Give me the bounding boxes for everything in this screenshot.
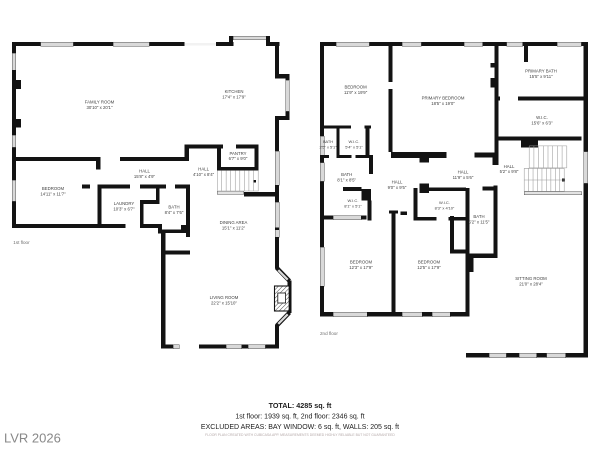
svg-text:PRIMARY BEDROOM: PRIMARY BEDROOM xyxy=(422,95,465,100)
svg-text:1st floor: 1st floor xyxy=(13,240,30,245)
svg-text:2'5" x 5'1": 2'5" x 5'1" xyxy=(319,144,337,149)
svg-text:HALL: HALL xyxy=(458,170,469,175)
svg-text:30'10" x 20'1": 30'10" x 20'1" xyxy=(87,105,113,110)
svg-text:LAUNDRY: LAUNDRY xyxy=(114,201,135,206)
svg-text:2nd floor: 2nd floor xyxy=(320,331,338,336)
svg-text:14'11" x 11'7": 14'11" x 11'7" xyxy=(40,192,66,197)
svg-text:4'10" x 8'4": 4'10" x 8'4" xyxy=(193,172,215,177)
svg-text:BEDROOM: BEDROOM xyxy=(344,85,367,90)
svg-text:LIVING ROOM: LIVING ROOM xyxy=(210,295,239,300)
svg-text:W.I.C.: W.I.C. xyxy=(349,139,360,144)
svg-text:18'5" x 19'0": 18'5" x 19'0" xyxy=(431,101,455,106)
svg-text:SITTING ROOM: SITTING ROOM xyxy=(515,276,547,281)
svg-text:8'1" x 8'5": 8'1" x 8'5" xyxy=(337,178,356,183)
svg-text:PANTRY: PANTRY xyxy=(229,151,246,156)
svg-text:5'2" x 11'5": 5'2" x 11'5" xyxy=(469,219,490,224)
svg-text:5'4" x 5'1": 5'4" x 5'1" xyxy=(345,144,363,149)
svg-text:8'3" x 4'10": 8'3" x 4'10" xyxy=(435,205,455,210)
svg-text:15'6" x 6'3": 15'6" x 6'3" xyxy=(531,121,553,126)
svg-text:TOTAL: 4285 sq. ft: TOTAL: 4285 sq. ft xyxy=(269,401,332,410)
svg-text:11'9" x 5'6": 11'9" x 5'6" xyxy=(453,175,474,180)
svg-text:1st floor: 1939 sq. ft, 2nd fl: 1st floor: 1939 sq. ft, 2nd floor: 2346 … xyxy=(235,413,364,420)
svg-text:17'4" x 17'9": 17'4" x 17'9" xyxy=(222,95,246,100)
svg-text:BEDROOM: BEDROOM xyxy=(350,260,373,265)
svg-text:10'3" x 6'7": 10'3" x 6'7" xyxy=(113,207,135,212)
svg-text:BEDROOM: BEDROOM xyxy=(42,186,65,191)
svg-text:11'9" x 19'9": 11'9" x 19'9" xyxy=(344,90,368,95)
svg-text:W.I.C.: W.I.C. xyxy=(348,198,359,203)
svg-text:PRIMARY BATH: PRIMARY BATH xyxy=(525,69,557,74)
svg-text:15'1" x 11'2": 15'1" x 11'2" xyxy=(222,226,246,231)
svg-text:EXCLUDED AREAS: BAY WINDOW: 6: EXCLUDED AREAS: BAY WINDOW: 6 sq. ft, WA… xyxy=(201,424,399,431)
svg-text:KITCHEN: KITCHEN xyxy=(225,89,244,94)
svg-text:8'4" x 7'6": 8'4" x 7'6" xyxy=(165,210,184,215)
svg-text:BATH: BATH xyxy=(473,214,484,219)
svg-text:BEDROOM: BEDROOM xyxy=(418,260,441,265)
svg-text:HALL: HALL xyxy=(392,180,403,185)
svg-text:FAMILY ROOM: FAMILY ROOM xyxy=(85,100,115,105)
svg-text:HALL: HALL xyxy=(139,169,150,174)
svg-text:9'0" x 9'5": 9'0" x 9'5" xyxy=(388,185,407,190)
svg-text:BATH: BATH xyxy=(341,172,352,177)
svg-text:HALL: HALL xyxy=(198,167,209,172)
svg-text:8'1" x 5'1": 8'1" x 5'1" xyxy=(344,203,362,208)
svg-text:21'0" x 28'4": 21'0" x 28'4" xyxy=(519,282,543,287)
svg-text:22'2" x 15'10": 22'2" x 15'10" xyxy=(211,301,237,306)
svg-text:FLOOR PLAN CREATED WITH CUBICA: FLOOR PLAN CREATED WITH CUBICASA APP. ME… xyxy=(205,433,395,437)
svg-text:W.I.C.: W.I.C. xyxy=(439,200,450,205)
svg-text:12'5" x 17'9": 12'5" x 17'9" xyxy=(417,265,441,270)
svg-text:LVR 2026: LVR 2026 xyxy=(4,431,61,446)
svg-text:15'5" x 9'11": 15'5" x 9'11" xyxy=(529,74,553,79)
svg-text:5'2" x 9'8": 5'2" x 9'8" xyxy=(500,169,519,174)
svg-text:BATH: BATH xyxy=(323,139,333,144)
svg-text:HALL: HALL xyxy=(504,164,515,169)
svg-text:DINING AREA: DINING AREA xyxy=(220,220,248,225)
svg-text:15'8" x 4'9": 15'8" x 4'9" xyxy=(134,174,156,179)
svg-text:6'7" x 9'0": 6'7" x 9'0" xyxy=(229,156,248,161)
svg-text:W.I.C.: W.I.C. xyxy=(536,115,548,120)
svg-text:12'3" x 17'9": 12'3" x 17'9" xyxy=(349,265,373,270)
svg-text:BATH: BATH xyxy=(168,205,179,210)
